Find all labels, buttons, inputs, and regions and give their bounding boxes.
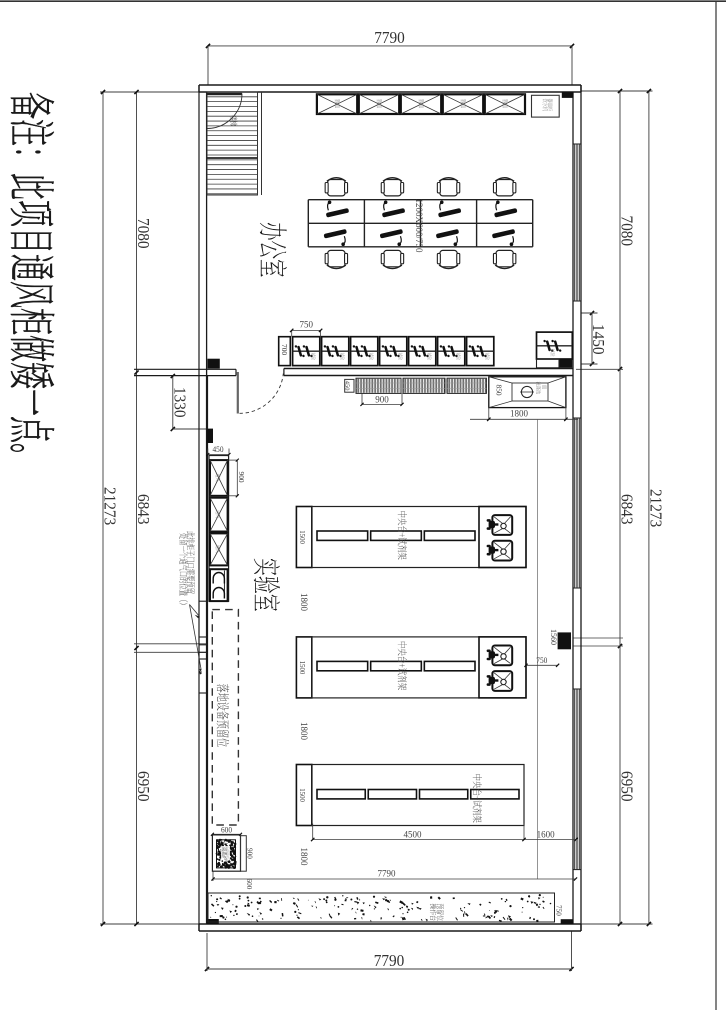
svg-text:900: 900 xyxy=(237,472,246,483)
svg-text:600: 600 xyxy=(221,825,232,834)
svg-text:450: 450 xyxy=(344,381,351,391)
svg-text:1330: 1330 xyxy=(170,387,188,418)
svg-text:1800: 1800 xyxy=(299,848,309,867)
svg-text:6950: 6950 xyxy=(617,771,635,802)
svg-text:450: 450 xyxy=(212,445,223,454)
svg-text:1200X600/750: 1200X600/750 xyxy=(414,199,424,254)
svg-text:900: 900 xyxy=(246,848,254,859)
svg-text:7790: 7790 xyxy=(374,29,405,47)
svg-text:7790: 7790 xyxy=(374,952,405,970)
svg-text:7790: 7790 xyxy=(378,869,397,879)
svg-text:7080: 7080 xyxy=(134,218,152,249)
svg-text:850: 850 xyxy=(495,385,504,396)
svg-text:7080: 7080 xyxy=(617,216,635,247)
svg-text:750: 750 xyxy=(555,905,563,916)
svg-text:1800: 1800 xyxy=(299,722,309,741)
svg-text:21273: 21273 xyxy=(100,487,118,525)
svg-text:900: 900 xyxy=(375,394,389,404)
svg-text:6843: 6843 xyxy=(134,494,152,525)
svg-text:750: 750 xyxy=(536,655,547,664)
svg-text:6843: 6843 xyxy=(617,494,635,525)
svg-text:750: 750 xyxy=(299,320,313,330)
svg-text:1800: 1800 xyxy=(510,409,529,419)
svg-text:600: 600 xyxy=(245,879,253,890)
svg-text:1450: 1450 xyxy=(589,324,607,355)
svg-text:6950: 6950 xyxy=(134,771,152,802)
svg-text:4500: 4500 xyxy=(404,829,423,839)
svg-text:1800: 1800 xyxy=(299,593,309,612)
svg-text:1500: 1500 xyxy=(298,530,305,544)
svg-text:1500: 1500 xyxy=(298,661,305,675)
svg-text:1600: 1600 xyxy=(537,829,556,839)
svg-text:1560: 1560 xyxy=(549,629,558,645)
svg-text:1500: 1500 xyxy=(298,788,305,802)
svg-text:700: 700 xyxy=(280,344,289,355)
svg-text:21273: 21273 xyxy=(646,489,664,527)
